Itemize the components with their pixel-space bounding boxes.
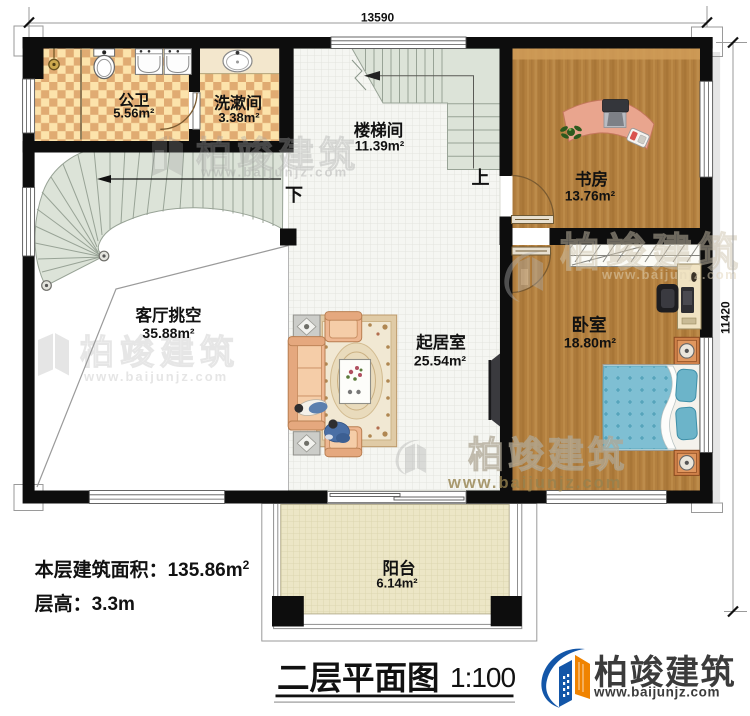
svg-text:卧室: 卧室 bbox=[572, 315, 607, 335]
svg-text:www.baijunjz.com: www.baijunjz.com bbox=[601, 267, 738, 282]
svg-text:层高：3.3m: 层高：3.3m bbox=[35, 592, 135, 615]
svg-text:www.baijunjz.com: www.baijunjz.com bbox=[593, 685, 720, 700]
svg-text:楼梯间: 楼梯间 bbox=[354, 120, 404, 140]
svg-text:3.38m²: 3.38m² bbox=[218, 110, 260, 125]
svg-text:6.14m²: 6.14m² bbox=[376, 576, 418, 591]
svg-text:www.baijunjz.com: www.baijunjz.com bbox=[447, 474, 622, 492]
svg-text:起居室: 起居室 bbox=[415, 332, 466, 352]
svg-text:5.56m²: 5.56m² bbox=[113, 106, 155, 121]
svg-text:本层建筑面积：135.86m2: 本层建筑面积：135.86m2 bbox=[35, 558, 250, 581]
svg-text:客厅挑空: 客厅挑空 bbox=[135, 305, 202, 325]
svg-text:二层平面图: 二层平面图 bbox=[277, 660, 440, 696]
svg-text:www.baijunjz.com: www.baijunjz.com bbox=[200, 165, 348, 180]
svg-text:25.54m²: 25.54m² bbox=[414, 353, 466, 369]
svg-text:11.39m²: 11.39m² bbox=[355, 139, 405, 154]
svg-text:下: 下 bbox=[285, 185, 303, 205]
svg-text:13590: 13590 bbox=[361, 11, 395, 25]
svg-text:13.76m²: 13.76m² bbox=[565, 189, 616, 204]
svg-text:www.baijunjz.com: www.baijunjz.com bbox=[83, 369, 228, 384]
svg-text:35.88m²: 35.88m² bbox=[142, 325, 194, 341]
svg-text:18.80m²: 18.80m² bbox=[564, 335, 616, 351]
svg-text:11420: 11420 bbox=[719, 301, 733, 334]
svg-text:1:100: 1:100 bbox=[450, 662, 515, 693]
svg-text:上: 上 bbox=[472, 168, 490, 188]
svg-text:书房: 书房 bbox=[575, 169, 608, 189]
svg-text:柏竣建筑: 柏竣建筑 bbox=[468, 434, 628, 475]
